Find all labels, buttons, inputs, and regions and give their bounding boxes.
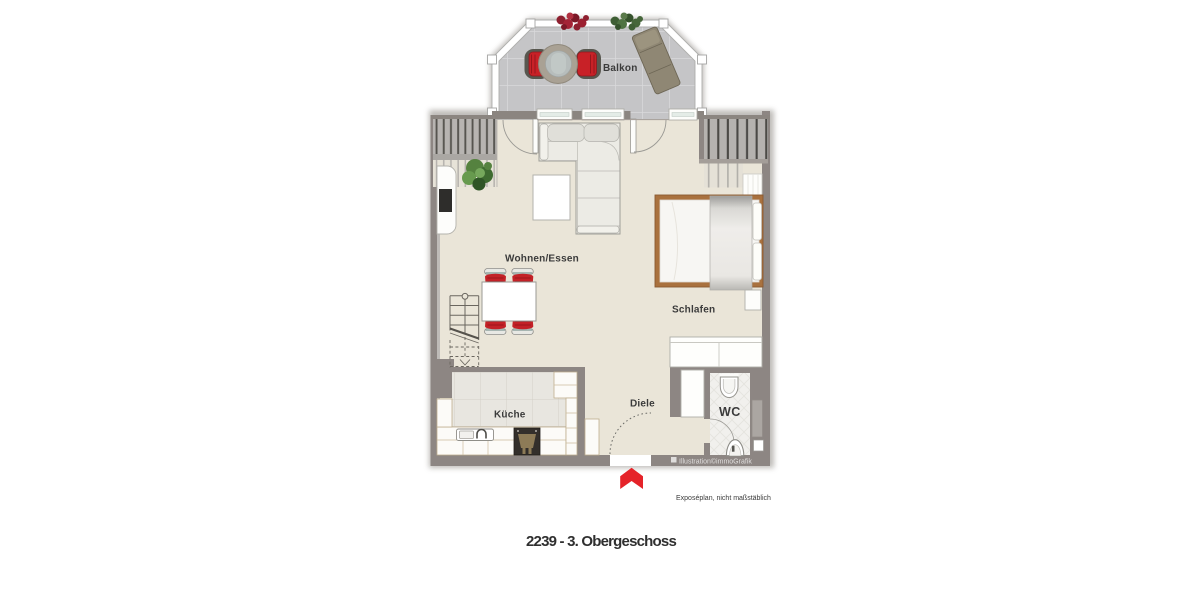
svg-text:Küche: Küche xyxy=(494,410,526,421)
svg-text:Diele: Diele xyxy=(630,399,655,410)
svg-text:2239 - 3. Obergeschoss: 2239 - 3. Obergeschoss xyxy=(526,533,676,550)
svg-text:Illustration©immoGrafik: Illustration©immoGrafik xyxy=(679,458,752,466)
svg-text:Schlafen: Schlafen xyxy=(672,305,715,316)
svg-text:Exposéplan, nicht maßstäblich: Exposéplan, nicht maßstäblich xyxy=(676,495,771,502)
svg-text:Balkon: Balkon xyxy=(603,63,638,74)
svg-text:WC: WC xyxy=(719,405,741,419)
svg-text:Wohnen/Essen: Wohnen/Essen xyxy=(505,254,579,265)
